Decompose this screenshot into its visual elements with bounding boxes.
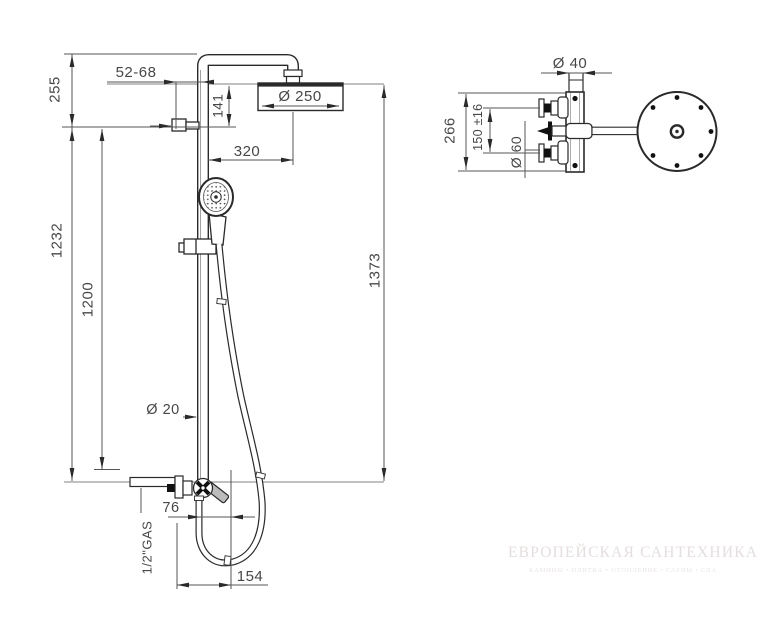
- watermark-title: ЕВРОПЕЙСКАЯ САНТЕХНИКА: [508, 544, 738, 562]
- rain-head-top-view: [638, 92, 717, 171]
- front-view: [130, 60, 343, 565]
- dim-label-52-68: 52-68: [106, 65, 166, 80]
- dim-label-154: 154: [220, 569, 280, 584]
- screw-hole-top: [572, 96, 577, 101]
- watermark: ЕВРОПЕЙСКАЯ САНТЕХНИКА КАМИНЫ • ПЛИТКА •…: [508, 544, 738, 574]
- watermark-subtitle: КАМИНЫ • ПЛИТКА • ОТОПЛЕНИЕ • САУНЫ • СП…: [508, 567, 738, 574]
- diverter-lever: [537, 122, 566, 141]
- drawing-linework: [0, 0, 769, 624]
- dim-label-1200: 1200: [81, 270, 96, 330]
- handshower-holder: [179, 239, 216, 254]
- dim-label-141: 141: [211, 76, 225, 136]
- dim-label-60: Ø 60: [509, 122, 523, 182]
- escutcheon: [175, 476, 183, 498]
- dim-label-20: Ø 20: [133, 403, 193, 418]
- side-view: [537, 73, 717, 172]
- screw-hole-bottom: [572, 163, 577, 168]
- dim-label-266: 266: [443, 101, 458, 161]
- mixer-assembly: [130, 476, 229, 503]
- dim-label-inlet-thread: 1/2"GAS: [141, 513, 154, 583]
- inlet-nut: [167, 484, 175, 492]
- technical-drawing-shower-column: 255 52-68 141 Ø 250 320 1232 1200 Ø 20 1…: [0, 0, 769, 624]
- dim-label-40: Ø 40: [540, 56, 600, 71]
- dim-label-255: 255: [48, 60, 63, 120]
- valve-top: [539, 97, 568, 118]
- dim-label-150-16: 150 ±16: [472, 92, 485, 162]
- dim-label-250: Ø 250: [270, 89, 330, 104]
- valve-bottom: [539, 141, 568, 164]
- head-connector: [284, 70, 302, 83]
- dim-label-320: 320: [217, 144, 277, 159]
- dim-label-1373: 1373: [368, 241, 383, 301]
- dim-label-1232: 1232: [50, 211, 65, 271]
